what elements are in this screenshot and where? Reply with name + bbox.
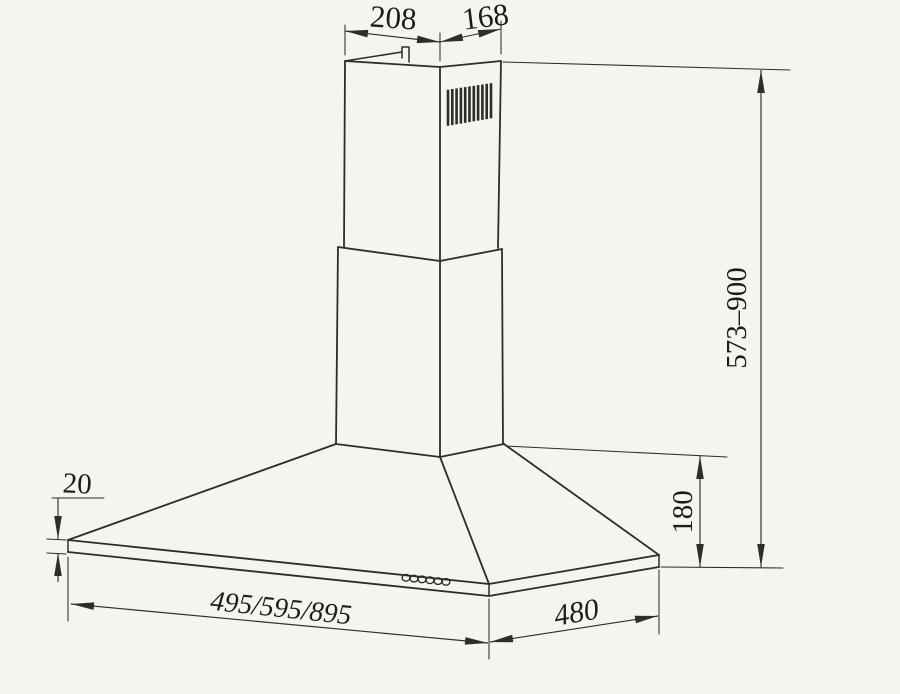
- chimney-lower-section: [336, 247, 503, 444]
- hood-top-edges: [336, 444, 504, 457]
- control-buttons: [402, 575, 450, 586]
- extension-line: [47, 539, 66, 540]
- hood-right-slant-edge: [504, 444, 659, 555]
- drawing-canvas: 208 168 573–900 180 20 495/595/895: [0, 0, 900, 694]
- hood-body: [68, 444, 659, 584]
- dimension-label: 168: [460, 0, 510, 37]
- dim-chimney-top-depth: 168: [440, 0, 511, 54]
- chimney-top-edges: [345, 61, 501, 67]
- chimney-upper-left-edge: [344, 61, 345, 247]
- chimney-lower-right-edge: [502, 249, 503, 444]
- chimney-top-fold: [345, 52, 402, 61]
- dim-chimney-height-range: 573–900: [503, 62, 790, 568]
- dim-chimney-top-width: 208: [345, 0, 440, 61]
- extension-line: [503, 62, 790, 70]
- chimney-duct: [336, 47, 503, 457]
- dimension-label: 480: [551, 592, 601, 632]
- dimension-label: 180: [667, 490, 699, 534]
- chimney-lower-left-edge: [336, 247, 338, 444]
- range-hood-technical-drawing: 208 168 573–900 180 20 495/595/895: [0, 0, 900, 694]
- dim-rim-thickness: 20: [47, 467, 104, 582]
- rim-bottom-outline: [68, 552, 659, 596]
- dimension-label: 573–900: [721, 267, 753, 369]
- extension-line: [47, 553, 66, 554]
- hood-front-slant-edge: [440, 457, 489, 584]
- hood-left-slant-edge: [68, 444, 336, 540]
- extension-line: [506, 446, 727, 457]
- dimension-label: 20: [62, 467, 93, 500]
- joint-edge: [338, 247, 502, 261]
- chimney-telescopic-joint: [338, 247, 502, 261]
- chimney-upper-right-edge: [498, 61, 501, 248]
- extension-line: [661, 567, 783, 568]
- dimension-label: 495/595/895: [209, 586, 353, 632]
- vent-grille-icon: [448, 83, 491, 126]
- dimension-label: 208: [369, 0, 418, 37]
- chimney-top-tab: [402, 47, 409, 62]
- hood-rim: [68, 540, 659, 596]
- dim-hood-body-height: 180: [506, 446, 727, 567]
- dim-hood-width-options: 495/595/895: [68, 557, 489, 659]
